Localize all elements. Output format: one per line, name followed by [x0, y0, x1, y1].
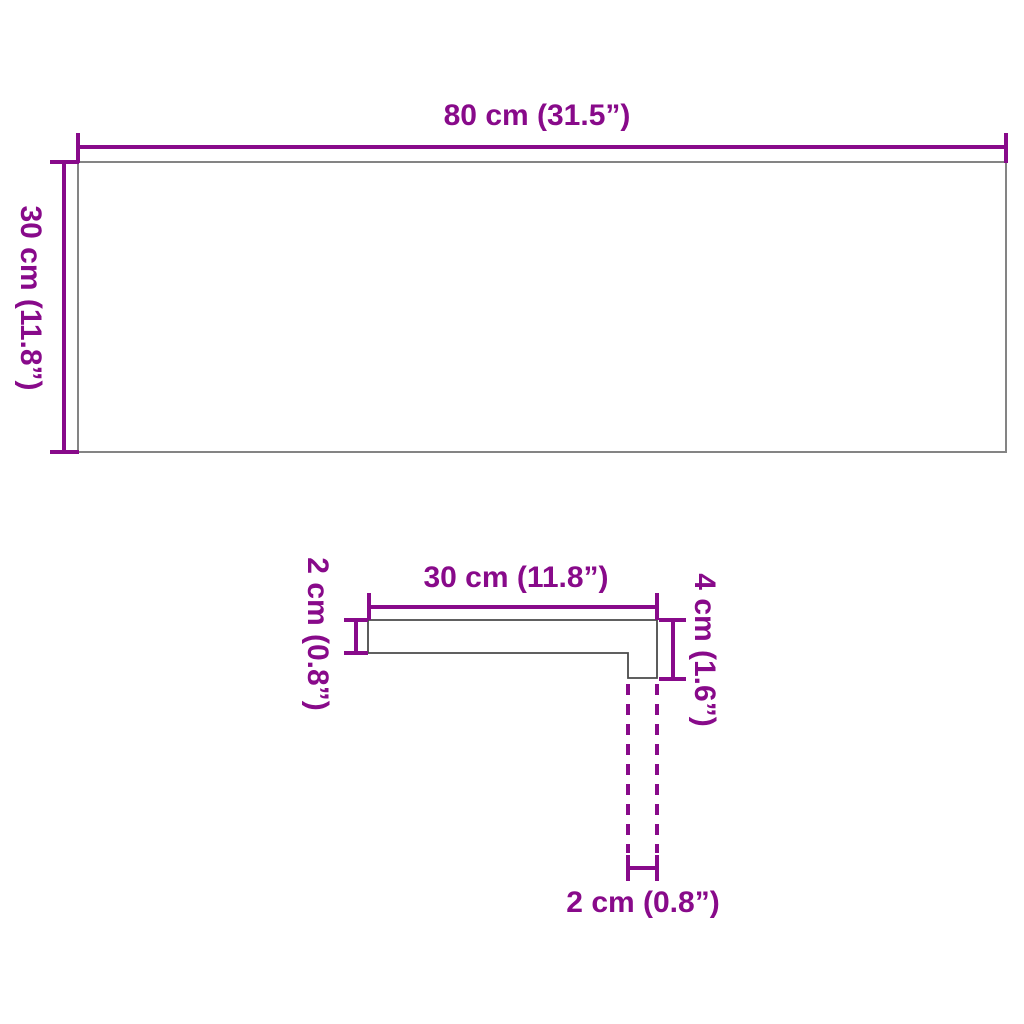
profile-height-label: 4 cm (1.6”): [689, 573, 719, 726]
top-view-outline: [78, 162, 1006, 452]
profile-outline: [368, 620, 657, 678]
height-dimension-label: 30 cm (11.8”): [15, 205, 45, 390]
profile-thickness-dimension-line: [344, 620, 368, 653]
width-dimension-line: [78, 133, 1006, 163]
diagram-canvas: [0, 0, 1024, 1024]
profile-thickness-label: 2 cm (0.8”): [302, 557, 332, 710]
hidden-edge-dashed-lines: [628, 684, 657, 853]
profile-width-dimension-line: [369, 593, 657, 620]
height-dimension-line: [50, 162, 79, 452]
product-dimensions-diagram: 80 cm (31.5”) 30 cm (11.8”) 30 cm (11.8”…: [0, 0, 1024, 1024]
step-width-label: 2 cm (0.8”): [566, 888, 719, 918]
width-dimension-label: 80 cm (31.5”): [444, 101, 631, 131]
step-width-dimension-line: [628, 855, 657, 881]
profile-width-label: 30 cm (11.8”): [423, 563, 608, 593]
profile-height-dimension-line: [659, 620, 686, 679]
